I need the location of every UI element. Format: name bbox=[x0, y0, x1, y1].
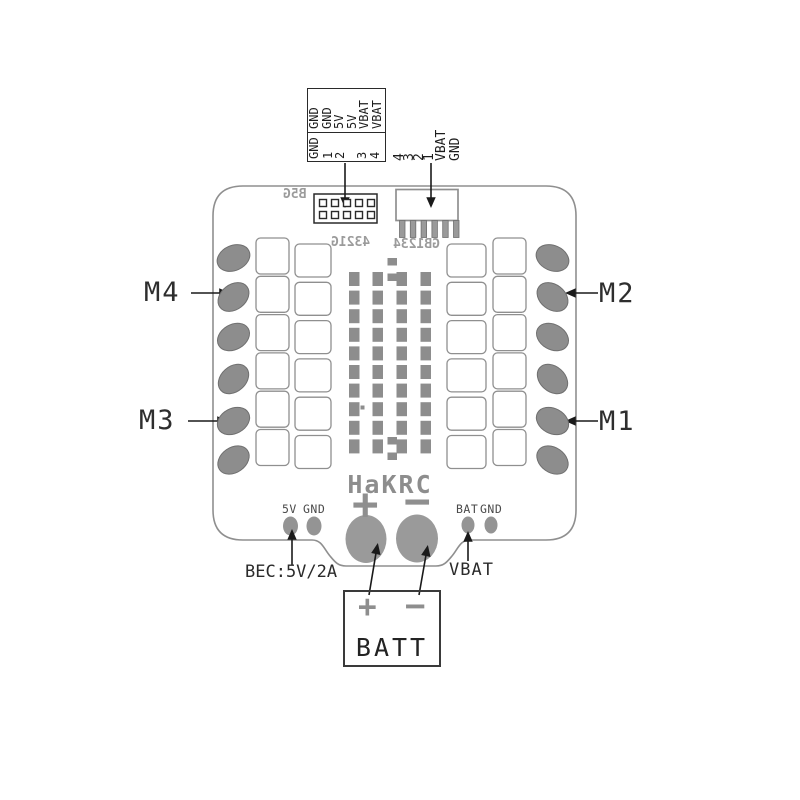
bat-gnd-pad-label: GND bbox=[480, 503, 502, 516]
jumper-pad bbox=[421, 365, 432, 379]
header-pin-hole bbox=[320, 212, 327, 219]
jumper-pad bbox=[349, 421, 360, 435]
arrow-esc-connector bbox=[428, 163, 435, 206]
connector-pin bbox=[410, 221, 416, 238]
board-graphics bbox=[0, 0, 800, 800]
fc-signal-label: GND bbox=[321, 107, 333, 129]
esc-pad bbox=[447, 282, 486, 315]
esc-pad bbox=[295, 397, 331, 430]
battery-box-plus-symbol: + bbox=[358, 592, 377, 623]
esc-pin-label: VBAT bbox=[435, 130, 448, 161]
jumper-pad bbox=[349, 439, 360, 453]
jumper-pad bbox=[421, 346, 432, 360]
esc-pad bbox=[295, 282, 331, 315]
jumper-pad bbox=[421, 291, 432, 305]
jumper-pad bbox=[373, 384, 384, 398]
connector-pin bbox=[400, 221, 406, 238]
jumper-pad bbox=[397, 291, 408, 305]
esc-pad bbox=[493, 391, 526, 427]
header-pin-hole bbox=[356, 200, 363, 207]
esc-pad bbox=[256, 391, 289, 427]
esc-pad bbox=[295, 359, 331, 392]
header-pin-hole bbox=[356, 212, 363, 219]
header-pin-hole bbox=[332, 212, 339, 219]
fc-pin-label: 4 bbox=[369, 152, 381, 159]
esc-pin-label: GND bbox=[449, 138, 462, 161]
battery-box: + − BATT bbox=[343, 590, 441, 667]
jumper-pad bbox=[397, 272, 408, 286]
esc-pad bbox=[493, 238, 526, 274]
jumper-pad bbox=[349, 309, 360, 323]
esc-connector-body bbox=[396, 190, 458, 221]
motor-label-m4: M4 bbox=[144, 278, 181, 308]
via-dot bbox=[361, 406, 365, 410]
fc-signal-label: VBAT bbox=[358, 100, 370, 129]
connector-pin bbox=[432, 221, 438, 238]
jumper-pad bbox=[397, 384, 408, 398]
jumper-pad bbox=[397, 439, 408, 453]
jumper-pad bbox=[349, 346, 360, 360]
esc-pad bbox=[447, 359, 486, 392]
header-pin-hole bbox=[344, 212, 351, 219]
esc-pad bbox=[493, 353, 526, 389]
esc-pad bbox=[447, 436, 486, 469]
header-pin-hole bbox=[320, 200, 327, 207]
esc-pad bbox=[493, 315, 526, 351]
bec-annotation: BEC:5V/2A bbox=[245, 563, 337, 582]
jumper-pad bbox=[421, 272, 432, 286]
esc-pad bbox=[493, 276, 526, 312]
jumper-pad bbox=[349, 272, 360, 286]
arrow-m1 bbox=[567, 418, 598, 425]
esc-pad bbox=[295, 244, 331, 277]
header-pin-hole bbox=[344, 200, 351, 207]
jumper-pad bbox=[421, 309, 432, 323]
bec-gnd-pad bbox=[307, 517, 322, 536]
jumper-pad-small bbox=[388, 274, 398, 282]
jumper-pad-small bbox=[388, 453, 398, 461]
vbat-annotation: VBAT bbox=[449, 561, 494, 580]
arrow-vbat bbox=[465, 533, 472, 561]
jumper-pad bbox=[421, 421, 432, 435]
battery-plus-symbol: + bbox=[352, 483, 379, 527]
fc-pin-label: 3 bbox=[356, 152, 368, 159]
silkscreen-gb1234: GB1234 bbox=[393, 238, 440, 251]
silkscreen-b5g: B5G bbox=[283, 188, 306, 201]
jumper-pad bbox=[373, 421, 384, 435]
fc-signal-label: VBAT bbox=[371, 100, 383, 129]
esc-pad bbox=[447, 244, 486, 277]
connector-pin bbox=[421, 221, 427, 238]
jumper-pad bbox=[373, 291, 384, 305]
jumper-pad bbox=[349, 384, 360, 398]
jumper-pad bbox=[349, 402, 360, 416]
motor-label-m1: M1 bbox=[599, 407, 636, 437]
fc-signal-label: GND bbox=[308, 107, 320, 129]
esc-pad bbox=[295, 436, 331, 469]
jumper-pad bbox=[349, 291, 360, 305]
jumper-pad bbox=[373, 309, 384, 323]
fc-pin-label: 2 bbox=[334, 152, 346, 159]
jumper-pad bbox=[421, 384, 432, 398]
jumper-pad-small bbox=[388, 258, 398, 266]
connector-pin bbox=[443, 221, 449, 238]
jumper-pad bbox=[397, 328, 408, 342]
jumper-pad bbox=[373, 365, 384, 379]
vbat-gnd-pad bbox=[485, 517, 498, 534]
jumper-pad bbox=[397, 365, 408, 379]
silkscreen-4321g: 4321G bbox=[331, 236, 370, 249]
jumper-pad bbox=[373, 328, 384, 342]
esc-pad bbox=[295, 321, 331, 354]
motor-label-m2: M2 bbox=[599, 279, 636, 309]
vbat-pad bbox=[462, 517, 475, 534]
arrow-m2 bbox=[567, 290, 598, 297]
esc-pad bbox=[447, 321, 486, 354]
arrow-bec bbox=[289, 531, 296, 565]
fc-signal-label: 5V bbox=[346, 115, 358, 129]
jumper-pad bbox=[421, 439, 432, 453]
bec-5v-pad-label: 5V bbox=[282, 503, 297, 516]
bec-gnd-pad-label: GND bbox=[303, 503, 325, 516]
bat-pad-label: BAT bbox=[456, 503, 478, 516]
fc-pin-label: GND bbox=[308, 137, 320, 159]
esc-pad bbox=[256, 430, 289, 466]
esc-pad bbox=[493, 430, 526, 466]
esc-pad bbox=[447, 397, 486, 430]
battery-box-minus-symbol: − bbox=[405, 589, 425, 623]
esc-pad bbox=[256, 315, 289, 351]
jumper-pad bbox=[397, 402, 408, 416]
jumper-pad bbox=[397, 346, 408, 360]
connector-pin bbox=[454, 221, 460, 238]
jumper-pad bbox=[349, 365, 360, 379]
header-pin-hole bbox=[368, 200, 375, 207]
fc-signal-label: 5V bbox=[333, 115, 345, 129]
jumper-pad-small bbox=[388, 437, 398, 445]
motor-label-m3: M3 bbox=[139, 406, 176, 436]
header-pin-hole bbox=[332, 200, 339, 207]
esc-pad bbox=[256, 353, 289, 389]
jumper-pad bbox=[397, 309, 408, 323]
header-pin-hole bbox=[368, 212, 375, 219]
esc-pad bbox=[256, 238, 289, 274]
jumper-pad bbox=[421, 328, 432, 342]
jumper-pad bbox=[397, 421, 408, 435]
jumper-pad bbox=[373, 439, 384, 453]
jumper-pad bbox=[421, 402, 432, 416]
jumper-pad bbox=[373, 402, 384, 416]
jumper-pad bbox=[373, 272, 384, 286]
jumper-pad bbox=[349, 328, 360, 342]
battery-box-label: BATT bbox=[345, 633, 439, 662]
battery-minus-symbol: − bbox=[404, 480, 431, 524]
esc-pad bbox=[256, 276, 289, 312]
jumper-pad bbox=[373, 346, 384, 360]
pdb-diagram: B5G 4321G GB1234 HaKRC M4 M3 M2 M1 5V GN… bbox=[0, 0, 800, 800]
